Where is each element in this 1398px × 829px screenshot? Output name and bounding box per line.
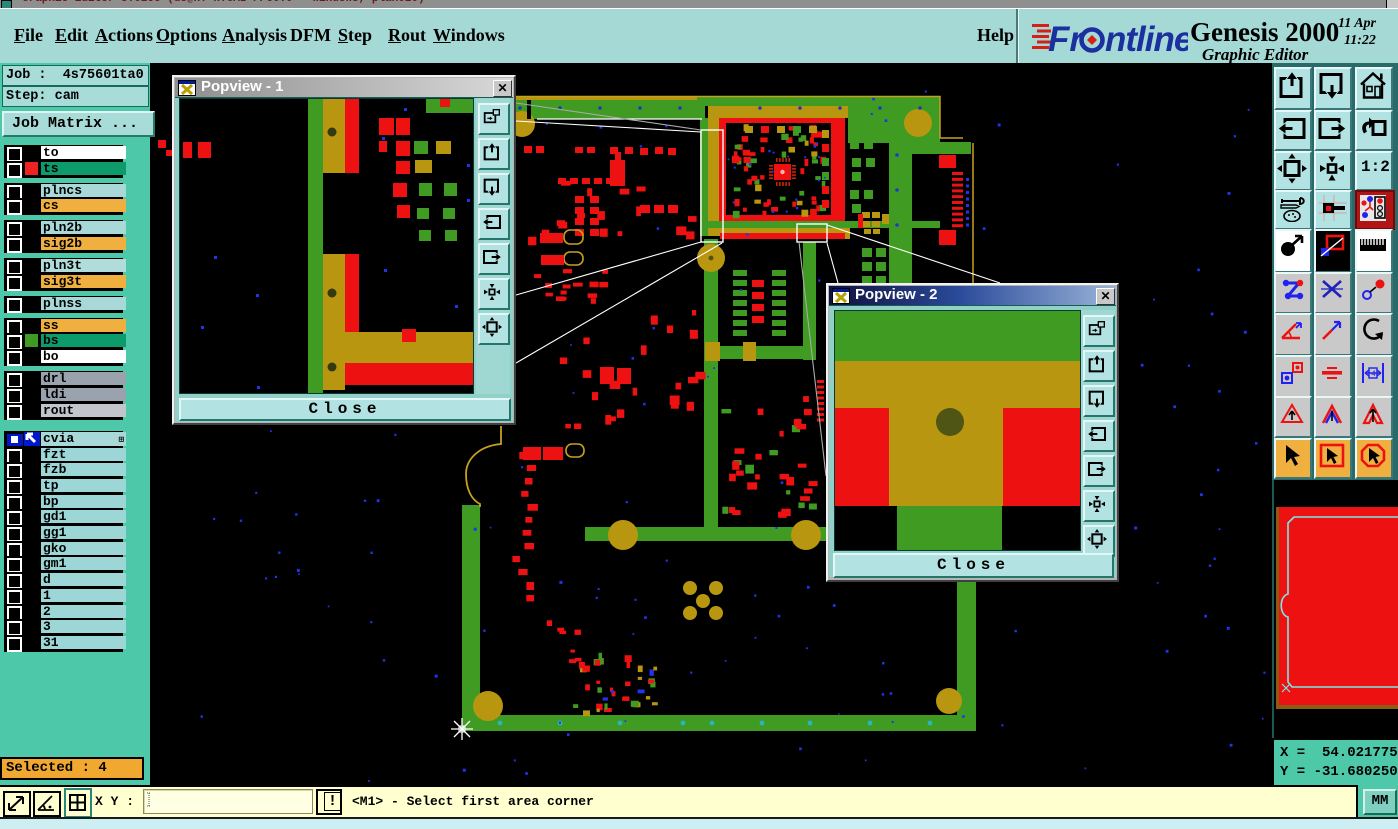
svg-text:ntline: ntline <box>1105 20 1188 59</box>
svg-text:4: 4 <box>1371 370 1376 379</box>
